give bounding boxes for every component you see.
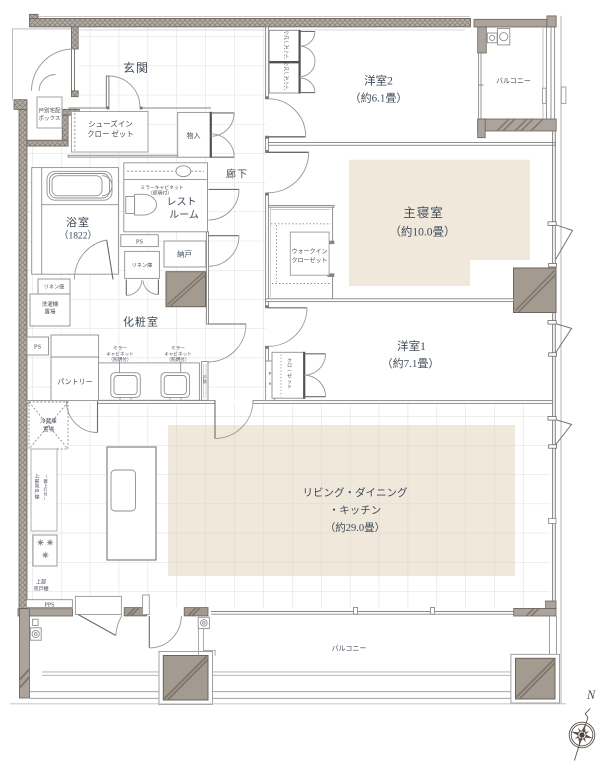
svg-text:・キッチン: ・キッチン <box>329 505 382 517</box>
svg-text:リネン庫: リネン庫 <box>44 283 65 291</box>
svg-text:クローゼット: クローゼット <box>285 31 289 59</box>
svg-text:リネン庫: リネン庫 <box>132 261 153 269</box>
svg-text:吊戸棚: 吊戸棚 <box>33 586 48 593</box>
svg-text:戸袋: 戸袋 <box>203 375 207 384</box>
svg-text:（約29.0畳）: （約29.0畳） <box>325 521 385 534</box>
svg-text:ウォークイン: ウォークイン <box>291 248 327 256</box>
svg-text:クローゼット: クローゼット <box>291 257 327 265</box>
svg-text:N: N <box>586 688 596 702</box>
svg-text:PPS: PPS <box>44 603 54 609</box>
svg-text:物入: 物入 <box>187 131 201 140</box>
svg-text:主寝室: 主寝室 <box>403 205 444 220</box>
svg-text:置場: 置場 <box>44 308 56 316</box>
svg-text:ミラーキャビネット: ミラーキャビネット <box>140 184 183 191</box>
svg-text:（照明付）: （照明付） <box>148 190 172 197</box>
svg-text:洗濯機: 洗濯機 <box>42 300 59 308</box>
svg-text:パントリー: パントリー <box>57 378 92 386</box>
svg-text:（約6.1畳）: （約6.1畳） <box>350 91 408 105</box>
svg-text:（1822）: （1822） <box>59 230 97 242</box>
svg-text:クロー ゼット: クロー ゼット <box>87 129 134 139</box>
svg-text:玄関: 玄関 <box>123 60 149 75</box>
svg-text:上部吊戸棚: 上部吊戸棚 <box>35 473 40 501</box>
svg-text:クローゼット: クローゼット <box>287 358 292 390</box>
svg-text:ルーム: ルーム <box>169 209 199 221</box>
svg-text:PS: PS <box>34 344 42 351</box>
svg-text:廊下: 廊下 <box>226 168 248 181</box>
svg-text:納戸: 納戸 <box>177 249 192 259</box>
svg-text:化粧室: 化粧室 <box>123 315 159 329</box>
svg-text:戸別宅配: 戸別宅配 <box>38 107 61 115</box>
svg-text:レスト: レスト <box>167 197 197 208</box>
svg-text:クローゼット: クローゼット <box>285 62 289 90</box>
svg-text:ボックス: ボックス <box>39 114 61 122</box>
svg-text:（棚下灯付）: （棚下灯付） <box>44 474 48 501</box>
svg-text:（照明付）: （照明付） <box>167 356 190 363</box>
svg-text:（照明付）: （照明付） <box>109 356 132 363</box>
svg-text:（約7.1畳）: （約7.1畳） <box>382 356 440 370</box>
svg-text:置場: 置場 <box>43 425 55 433</box>
svg-text:バルコニー: バルコニー <box>496 77 531 85</box>
svg-text:リビング・ダイニング: リビング・ダイニング <box>303 486 408 499</box>
svg-text:洋室1: 洋室1 <box>397 339 426 353</box>
svg-text:浴室: 浴室 <box>66 215 90 229</box>
svg-text:上部: 上部 <box>36 579 46 586</box>
svg-text:冷蔵庫: 冷蔵庫 <box>40 417 57 425</box>
svg-text:（約10.0畳）: （約10.0畳） <box>389 225 455 239</box>
svg-text:シューズイン: シューズイン <box>88 119 133 129</box>
svg-text:洋室2: 洋室2 <box>364 74 393 88</box>
svg-text:PS: PS <box>136 239 144 246</box>
svg-text:バルコニー: バルコニー <box>332 645 367 653</box>
